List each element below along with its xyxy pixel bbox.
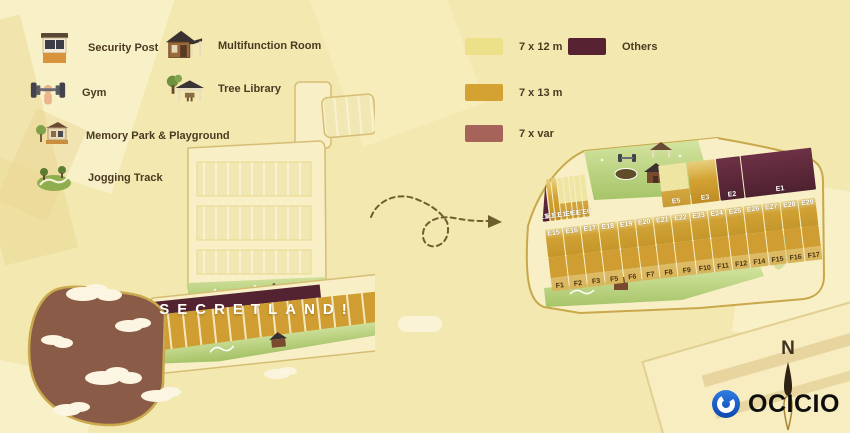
lot-label: F16: [789, 254, 802, 262]
swatch-7xvar: [465, 125, 503, 142]
right-site-plan: E14E12E11E10E9E8E7E6 E5E3E2E1 E15E16E17E…: [520, 130, 842, 322]
swatch-7x13: [465, 84, 503, 101]
lot-label: E1: [775, 185, 784, 193]
lot-f9: F9: [675, 241, 696, 277]
secret-area: [29, 287, 165, 425]
lot-label: E20: [638, 218, 651, 226]
lot-f1: F1: [548, 256, 569, 292]
lot-label: F5: [610, 276, 619, 284]
lot-label: F12: [735, 260, 748, 268]
lot-label: F1: [555, 282, 564, 290]
legend-label: 7 x 13 m: [519, 87, 562, 99]
lot-label: F7: [646, 271, 655, 279]
lot-label: F8: [664, 269, 673, 277]
lot-e20: E20: [635, 217, 655, 247]
lot-e22: E22: [671, 213, 691, 243]
lot-label: F6: [628, 273, 637, 281]
lot-label: E22: [674, 214, 687, 222]
lot-label: E16: [565, 227, 578, 235]
legend-label: Security Post: [88, 42, 158, 54]
lot-label: F2: [574, 280, 583, 288]
lot-label: E3: [701, 194, 710, 202]
lot-label: F15: [771, 256, 784, 264]
compass-n-label: N: [766, 338, 810, 360]
legend-item-7x12: 7 x 12 m: [465, 38, 562, 55]
swatch-others: [568, 38, 606, 55]
lot-e21: E21: [653, 215, 673, 245]
legend-item-7x13: 7 x 13 m: [465, 84, 562, 101]
lot-e15: E15: [544, 228, 564, 258]
lot-label: E5: [672, 197, 681, 205]
brand-logo: OCICIO: [710, 388, 840, 420]
security-post-icon: [34, 30, 74, 66]
site-plan-poster: Security Post Gym: [0, 0, 850, 433]
lot-label: F9: [682, 267, 691, 275]
lot-label: E19: [620, 221, 633, 229]
lower-lots-block: [148, 274, 375, 374]
lot-f17: F17: [802, 225, 823, 261]
lot-e3: E3: [687, 159, 720, 204]
lot-label: E29: [801, 199, 814, 207]
lot-e24: E24: [708, 208, 728, 238]
lot-label: E27: [765, 203, 778, 211]
legend-item-security-post: Security Post: [34, 30, 158, 66]
left-site-plan: [25, 78, 375, 433]
lot-label: F11: [717, 262, 729, 270]
plan-top-lobe: [321, 94, 375, 138]
legend-label: 7 x 12 m: [519, 41, 562, 53]
lot-label: E28: [783, 201, 796, 209]
lot-f5: F5: [602, 249, 623, 285]
lot-label: E25: [728, 208, 741, 216]
lot-e5: E5: [658, 163, 691, 208]
lot-band: [197, 250, 311, 274]
road-gap: [585, 166, 662, 216]
lot-e17: E17: [581, 224, 601, 254]
lot-label: E26: [746, 205, 759, 213]
lot-e28: E28: [780, 200, 800, 230]
lot-e29: E29: [798, 198, 818, 228]
lot-label: E15: [547, 229, 560, 237]
lot-label: E6: [582, 208, 591, 216]
lot-e1: E1: [741, 148, 816, 198]
brand-name: OCICIO: [748, 390, 840, 419]
lot-label: F14: [753, 258, 766, 266]
lot-label: F17: [807, 252, 820, 260]
lot-label: E21: [656, 216, 669, 224]
lot-e2: E2: [716, 156, 745, 201]
swatch-7x12: [465, 38, 503, 55]
dashed-arrow-icon: [363, 186, 505, 264]
legend-item-others: Others: [568, 38, 657, 55]
legend-label: Others: [622, 41, 657, 53]
lot-e23: E23: [690, 211, 710, 241]
lot-band: [197, 206, 311, 240]
legend-item-multifunction-room: Multifunction Room: [164, 28, 321, 64]
multifunction-room-icon: [164, 28, 204, 64]
lot-e18: E18: [599, 221, 619, 251]
lot-group-left: E14E12E11E10E9E8E7E6: [537, 175, 590, 222]
lot-label: E18: [601, 223, 614, 231]
plan-title: SECRETLAND!: [146, 301, 368, 318]
lot-label: E2: [727, 191, 736, 199]
lot-e27: E27: [762, 202, 782, 232]
lot-e26: E26: [744, 204, 764, 234]
lot-label: E17: [583, 225, 596, 233]
lot-label: F10: [699, 265, 712, 273]
lot-e19: E19: [617, 219, 637, 249]
lot-e25: E25: [726, 206, 746, 236]
lot-label: E23: [692, 212, 705, 220]
ocicio-logo-icon: [710, 388, 742, 420]
lot-e16: E16: [563, 226, 583, 256]
lot-label: E24: [710, 210, 723, 218]
lot-label: F3: [592, 278, 601, 286]
lot-f14: F14: [747, 232, 768, 268]
lot-band: [197, 162, 311, 196]
bg-cloud: [398, 316, 442, 332]
legend-label: Multifunction Room: [218, 40, 321, 52]
